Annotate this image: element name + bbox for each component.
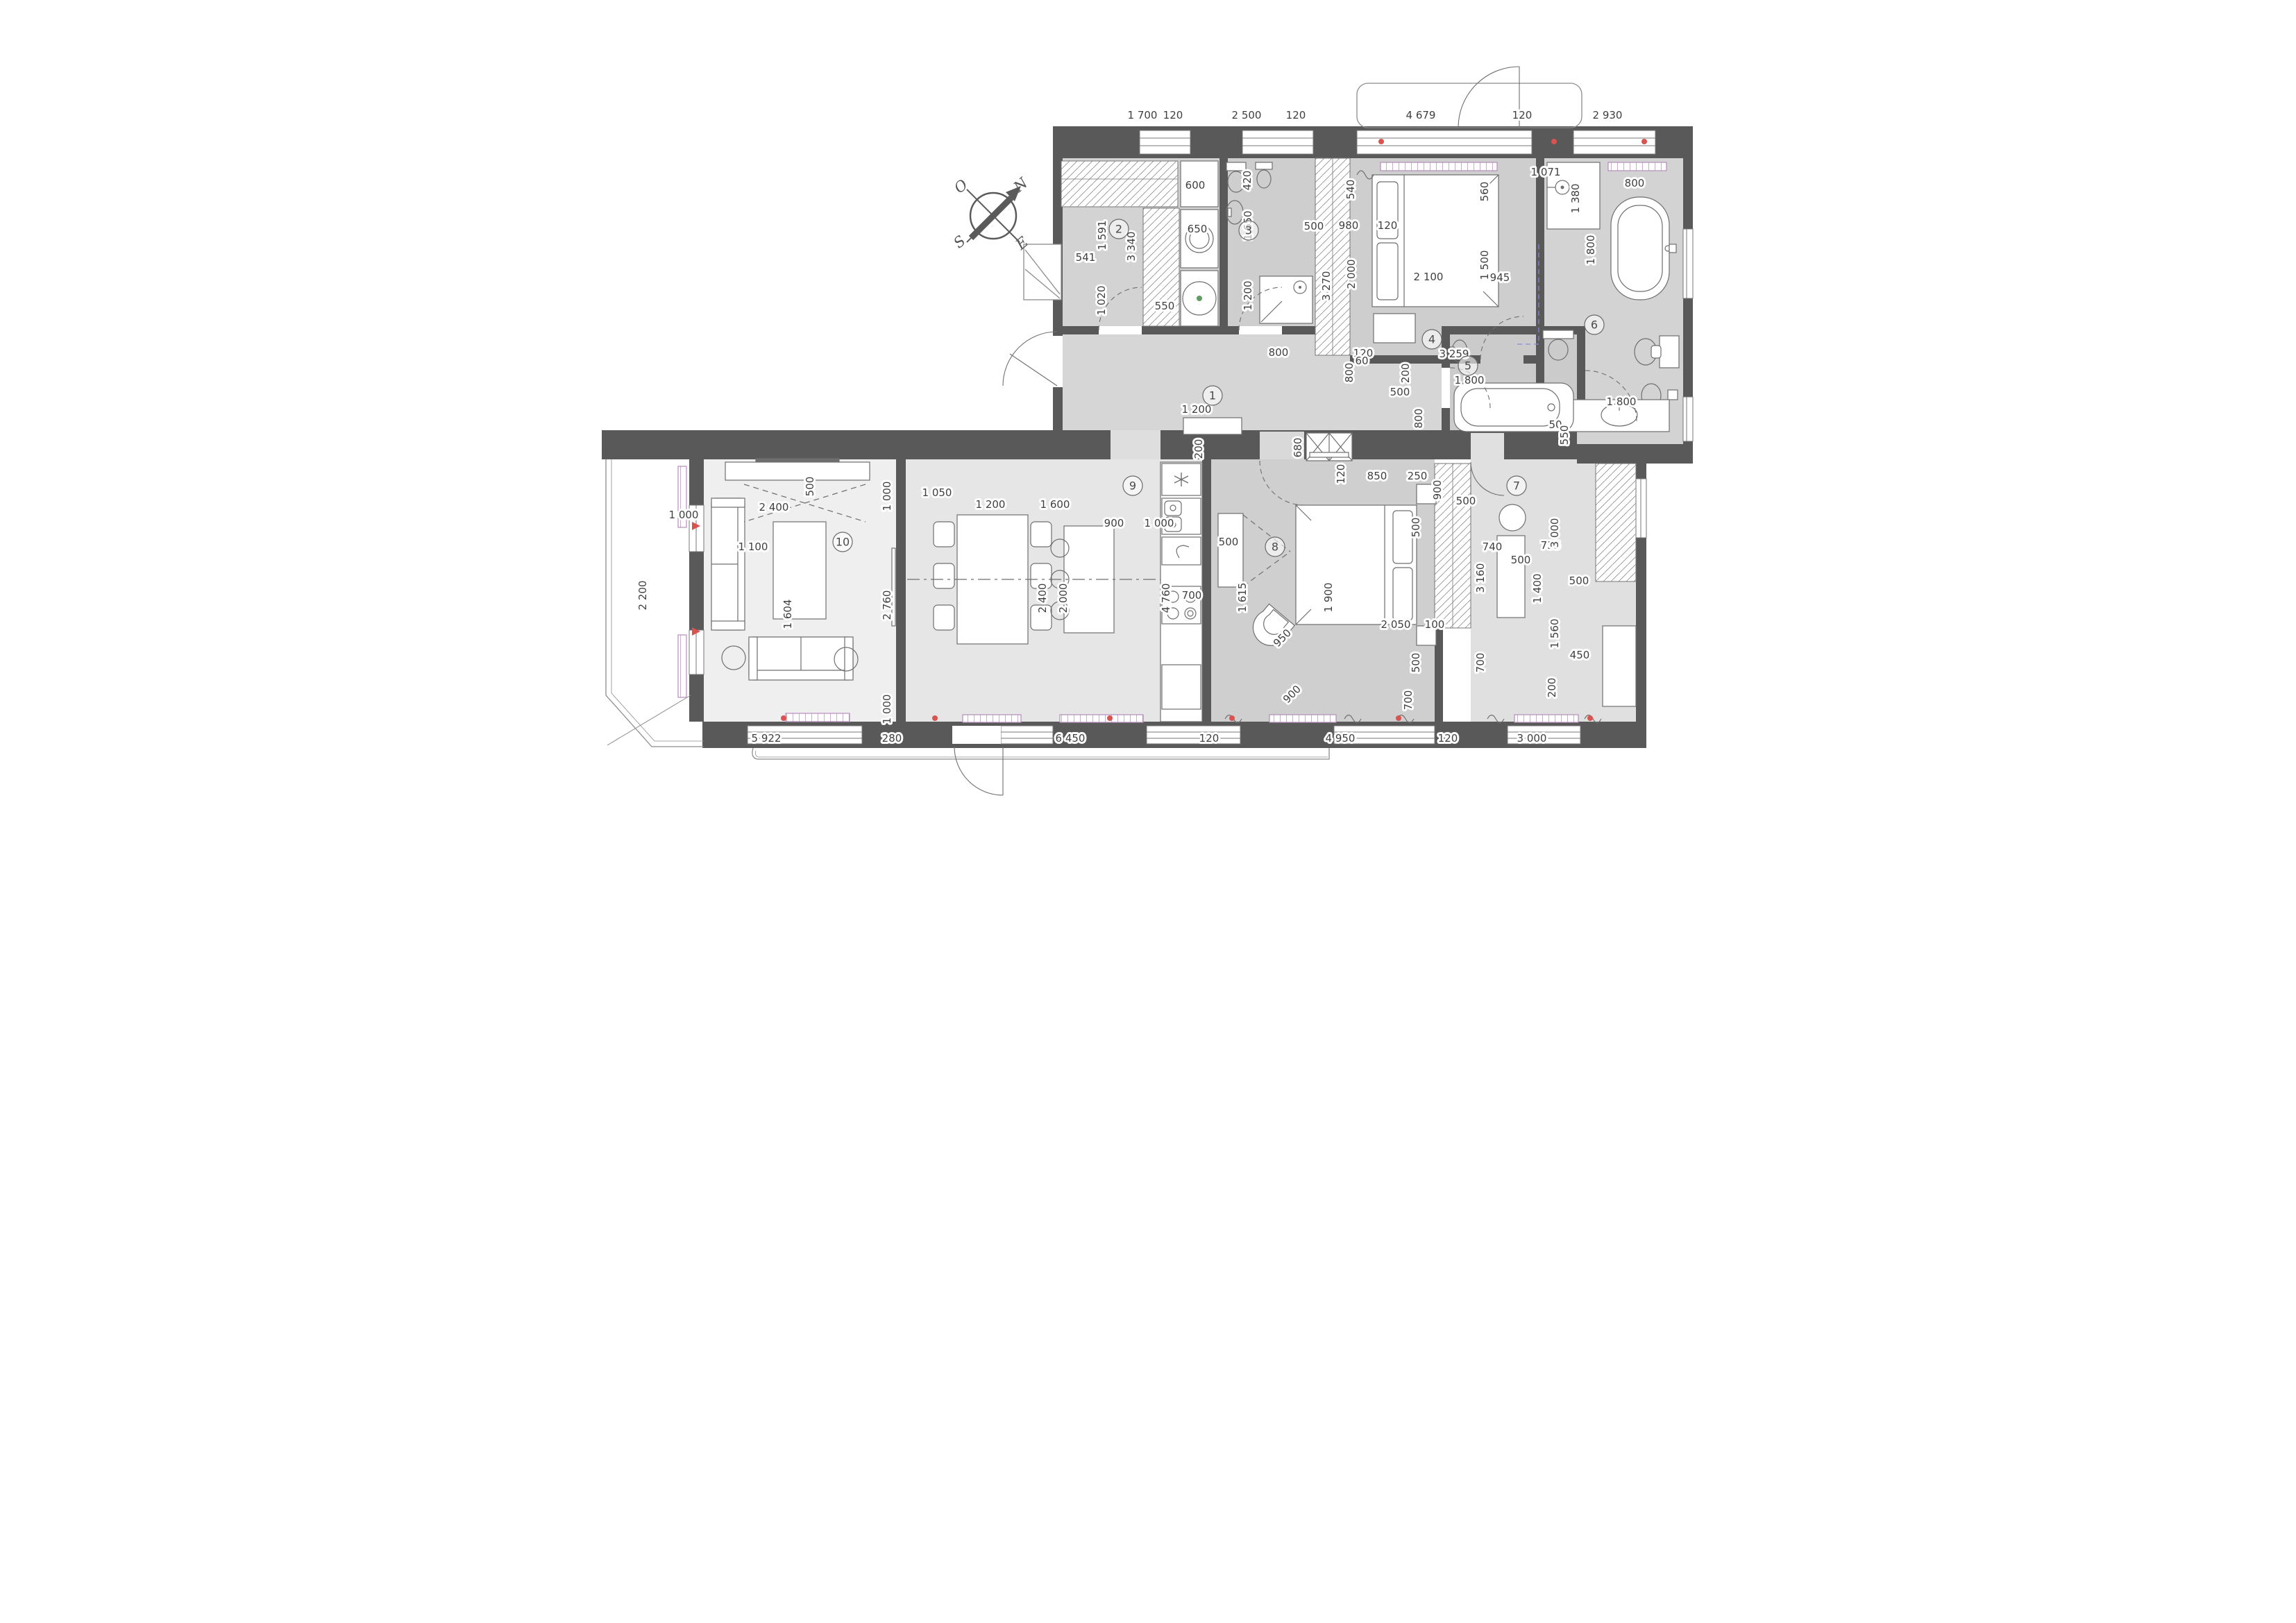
- dimension-label: 4 760: [1160, 584, 1172, 613]
- room-number-text: 7: [1513, 479, 1520, 493]
- dimension-label: 700: [1402, 690, 1415, 711]
- dimension-label: 740: [1483, 541, 1503, 553]
- dimension-label: 120: [1199, 732, 1219, 745]
- loggia-radiators: [678, 466, 686, 697]
- room-number-text: 2: [1115, 223, 1122, 236]
- dimension-label: 550: [1558, 425, 1571, 445]
- dimension-label: 3 000: [1517, 732, 1547, 745]
- dimension-label: 1 700: [1128, 109, 1158, 121]
- hall-bench: [1183, 418, 1242, 434]
- window-bottom-3: [1147, 726, 1240, 744]
- dimension-label: 1 591: [1096, 221, 1108, 250]
- dimension-label: 500: [1410, 653, 1422, 673]
- dimension-label: 3 000: [1548, 518, 1561, 548]
- compass-rose: [967, 186, 1021, 242]
- dimension-label: 450: [1570, 649, 1590, 661]
- radiator-room8: [1269, 715, 1336, 722]
- dimension-label: 800: [1343, 363, 1356, 383]
- dimension-label: 500: [1219, 536, 1239, 548]
- dimension-label: 2 050: [1381, 618, 1411, 631]
- pocket-door-room8: [1310, 452, 1349, 457]
- dimension-label: 3 270: [1320, 271, 1333, 301]
- room-number-marker: 9: [1123, 476, 1142, 495]
- bathtub-room6: [1611, 197, 1676, 300]
- dimension-label: 1 800: [1585, 235, 1597, 265]
- balcony-door-bottom: [954, 747, 1003, 795]
- bed-room8: [1296, 505, 1417, 624]
- dimension-label: 1 900: [1322, 583, 1335, 613]
- dimension-label: 1 400: [1531, 574, 1544, 604]
- dimension-label: 1 604: [782, 600, 794, 629]
- dimension-label: 500: [1456, 495, 1476, 507]
- dimension-label: 945: [1490, 271, 1510, 284]
- dimension-label: 200: [1192, 439, 1205, 459]
- dimension-label: 900: [1431, 480, 1444, 500]
- room-number-marker: 3: [1239, 221, 1258, 240]
- dimension-label: 120: [1378, 219, 1398, 232]
- room-number-marker: 7: [1507, 476, 1526, 495]
- dimension-label: 120: [1438, 732, 1458, 745]
- tv-console: [725, 459, 870, 480]
- dimension-label: 500: [804, 477, 816, 497]
- dimension-label: 650: [1188, 223, 1208, 235]
- dimension-label: 500: [1511, 554, 1531, 566]
- dimension-label: 2 500: [1232, 109, 1262, 121]
- lower-balcony-outline: [752, 748, 1329, 759]
- dimension-label: 1 615: [1236, 583, 1249, 613]
- dimension-label: 1 500: [1478, 250, 1491, 280]
- room-number-text: 5: [1464, 359, 1471, 373]
- room-number-marker: 2: [1109, 219, 1129, 239]
- room-number-text: 3: [1245, 224, 1252, 237]
- dimension-label: 2 930: [1593, 109, 1623, 121]
- wardrobe-room7-right: [1596, 464, 1636, 581]
- dimension-label: 2 760: [881, 590, 893, 620]
- room-number-marker: 8: [1265, 537, 1285, 556]
- dimension-label: 420: [1241, 171, 1253, 191]
- dimension-label: 1 200: [976, 498, 1006, 511]
- dimension-label: 500: [1390, 386, 1410, 398]
- room-number-text: 9: [1129, 479, 1136, 493]
- dimension-label: 1 800: [1607, 396, 1637, 408]
- dimension-label: 1 600: [1040, 498, 1070, 511]
- window-top-1: [1140, 130, 1190, 154]
- dimension-label: 700: [1474, 653, 1487, 673]
- dimension-label: 541: [1076, 251, 1096, 264]
- window-right-lower: [1636, 479, 1646, 538]
- dimension-label: 700: [1182, 589, 1202, 602]
- dimension-label: 980: [1339, 219, 1359, 232]
- dimension-label: 120: [1286, 109, 1306, 121]
- wardrobe-room2-top: [1061, 161, 1178, 207]
- dimension-label: 2 000: [1345, 260, 1358, 289]
- dimension-label: 250: [1408, 470, 1428, 482]
- utility-sink: [1181, 271, 1218, 326]
- dimension-label: 100: [1425, 618, 1445, 631]
- window-right-1: [1683, 229, 1693, 298]
- balcony-door-top: [1458, 67, 1519, 128]
- dimension-label: 2 400: [759, 501, 789, 513]
- entry-door: [1003, 332, 1057, 386]
- upper-balcony-outline: [1357, 83, 1582, 128]
- dimension-label: 6 450: [1056, 732, 1086, 745]
- dimension-label: 3 340: [1125, 232, 1138, 262]
- window-left-2: [689, 630, 704, 674]
- dimension-label: 120: [1335, 464, 1347, 484]
- dimension-label: 500: [1569, 575, 1589, 587]
- dimension-label: 1 000: [881, 482, 893, 511]
- dimension-label: 1 200: [1182, 403, 1212, 416]
- dimension-label: 800: [1269, 346, 1289, 359]
- dimension-label: 2 200: [636, 581, 649, 611]
- room-number-text: 10: [836, 536, 850, 549]
- dimension-label: 600: [1185, 179, 1206, 192]
- dimension-label: 800: [1625, 177, 1645, 189]
- compass-letter-O: O: [951, 176, 971, 196]
- floor-plan-page: 1 7001202 5001204 6791202 9305 9222806 4…: [574, 0, 1722, 812]
- room-number-text: 1: [1209, 389, 1216, 402]
- dimension-label: 1 200: [1242, 281, 1254, 311]
- compass-letter-S: S: [950, 232, 968, 252]
- dimension-label: 120: [1163, 109, 1183, 121]
- dimension-label: 900: [1104, 517, 1124, 529]
- sofa-bottom: [749, 637, 853, 680]
- dimension-label: 5 922: [752, 732, 782, 745]
- dimension-label: 3 160: [1474, 563, 1487, 593]
- bench-room4: [1374, 314, 1415, 343]
- sofa-left: [711, 498, 745, 630]
- desk-room8: [1218, 513, 1243, 587]
- dimension-label: 1 050: [922, 486, 952, 499]
- floor-plan-drawing: 1 7001202 5001204 6791202 9305 9222806 4…: [574, 0, 1722, 812]
- dimension-label: 680: [1292, 438, 1304, 458]
- dimension-label: 200: [1546, 678, 1558, 698]
- dimension-label: 800: [1412, 409, 1425, 429]
- dimension-label: 540: [1344, 180, 1357, 200]
- dimension-label: 2 000: [1057, 584, 1070, 613]
- dimension-label: 4 950: [1326, 732, 1356, 745]
- dimension-label: 1 380: [1569, 184, 1582, 214]
- radiator-room7: [1514, 715, 1578, 722]
- dining-table: [957, 515, 1028, 644]
- room-number-marker: 1: [1203, 386, 1222, 405]
- dimension-label: 280: [882, 732, 902, 745]
- room-number-text: 6: [1591, 318, 1598, 332]
- dimension-label: 1 000: [669, 509, 699, 521]
- window-right-2: [1683, 397, 1693, 441]
- dimension-label: 1 000: [1145, 517, 1174, 529]
- room-number-marker: 6: [1585, 315, 1604, 334]
- dimension-label: 550: [1155, 300, 1175, 312]
- dimension-label: 1 020: [1095, 286, 1108, 316]
- room-number-marker: 10: [833, 532, 852, 552]
- dimension-label: 1 071: [1531, 166, 1561, 178]
- radiator-room4: [1381, 162, 1497, 171]
- radiator-room6: [1608, 162, 1666, 171]
- dimension-label: 60: [1355, 355, 1368, 367]
- window-top-2: [1242, 130, 1313, 154]
- room-number-text: 8: [1272, 541, 1278, 554]
- dimension-label: 2 400: [1036, 584, 1049, 613]
- chair-room7: [1499, 504, 1526, 531]
- dimension-label: 1 560: [1548, 619, 1561, 649]
- shower-room3: [1260, 276, 1312, 323]
- dimension-label: 1 800: [1455, 374, 1485, 386]
- washing-machine: [1181, 210, 1218, 268]
- dimension-label: 2 100: [1414, 271, 1444, 283]
- dimension-label: 500: [1410, 518, 1422, 538]
- room-number-marker: 4: [1422, 330, 1442, 349]
- dresser-room7: [1603, 626, 1636, 706]
- dimension-label: 500: [1304, 220, 1324, 232]
- room-number-marker: 5: [1458, 356, 1478, 375]
- dimension-label: 850: [1367, 470, 1387, 482]
- room-number-text: 4: [1428, 333, 1435, 346]
- radiator-room10: [786, 713, 850, 722]
- dimension-label: 1 000: [881, 695, 893, 724]
- dimension-label: 120: [1512, 109, 1533, 121]
- window-bottom-2: [1001, 726, 1053, 744]
- dimension-label: 560: [1478, 182, 1491, 202]
- dimension-label: 4 679: [1406, 109, 1436, 121]
- dimension-label: 1 100: [738, 541, 768, 553]
